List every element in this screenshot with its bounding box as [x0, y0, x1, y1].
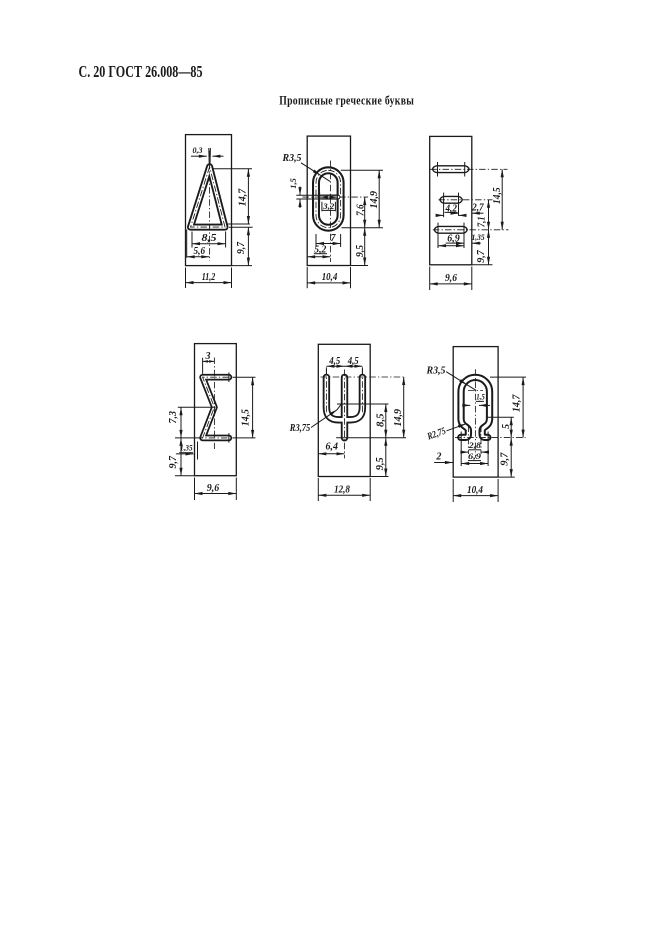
svg-text:5: 5	[501, 424, 512, 429]
svg-text:R2,75: R2,75	[425, 426, 447, 443]
svg-text:4,5: 4,5	[328, 356, 340, 367]
svg-text:6,9: 6,9	[468, 451, 482, 461]
svg-text:4,5: 4,5	[347, 356, 359, 367]
svg-text:0,3: 0,3	[193, 145, 204, 155]
svg-text:R3,75: R3,75	[289, 423, 310, 434]
svg-text:R3,5: R3,5	[426, 366, 446, 377]
svg-text:7,3: 7,3	[168, 411, 179, 424]
svg-text:9,7: 9,7	[168, 455, 179, 469]
svg-text:1,5: 1,5	[288, 178, 298, 189]
svg-text:14,7: 14,7	[512, 394, 523, 413]
svg-text:2: 2	[435, 452, 441, 463]
svg-text:9,6: 9,6	[445, 273, 457, 284]
svg-text:14,7: 14,7	[238, 188, 249, 207]
svg-text:R3,5: R3,5	[282, 153, 302, 164]
svg-text:10,4: 10,4	[322, 272, 338, 283]
svg-text:11,2: 11,2	[202, 272, 216, 283]
svg-text:9,5: 9,5	[375, 457, 386, 470]
svg-text:3,2: 3,2	[322, 201, 335, 211]
svg-text:10,4: 10,4	[467, 485, 483, 496]
svg-text:14,5: 14,5	[492, 187, 503, 204]
svg-text:9,7: 9,7	[236, 241, 247, 254]
svg-text:С. 20 ГОСТ 26.008—85: С. 20 ГОСТ 26.008—85	[79, 62, 203, 81]
svg-text:9,5: 9,5	[355, 245, 366, 257]
svg-text:7: 7	[331, 233, 337, 244]
svg-text:7,1: 7,1	[477, 216, 488, 227]
svg-text:5,6: 5,6	[194, 246, 206, 257]
svg-text:9,7: 9,7	[476, 249, 487, 263]
svg-text:Прописные греческие буквы: Прописные греческие буквы	[279, 94, 414, 108]
svg-text:9,6: 9,6	[207, 483, 220, 494]
svg-text:14,5: 14,5	[241, 409, 252, 426]
svg-text:2,8: 2,8	[468, 440, 482, 450]
svg-text:1,5: 1,5	[476, 392, 485, 402]
svg-text:14,9: 14,9	[393, 409, 404, 427]
svg-text:8,5: 8,5	[375, 413, 386, 427]
svg-text:7,6: 7,6	[355, 204, 366, 216]
svg-text:8,5: 8,5	[202, 233, 217, 244]
svg-text:9,7: 9,7	[500, 452, 511, 466]
svg-text:2,7: 2,7	[471, 203, 484, 214]
svg-text:6,4: 6,4	[326, 442, 339, 453]
svg-text:14,9: 14,9	[369, 191, 380, 209]
svg-text:1,35: 1,35	[180, 443, 193, 453]
svg-text:1,35: 1,35	[472, 232, 486, 242]
svg-text:12,8: 12,8	[334, 485, 350, 496]
svg-text:3: 3	[205, 351, 211, 362]
